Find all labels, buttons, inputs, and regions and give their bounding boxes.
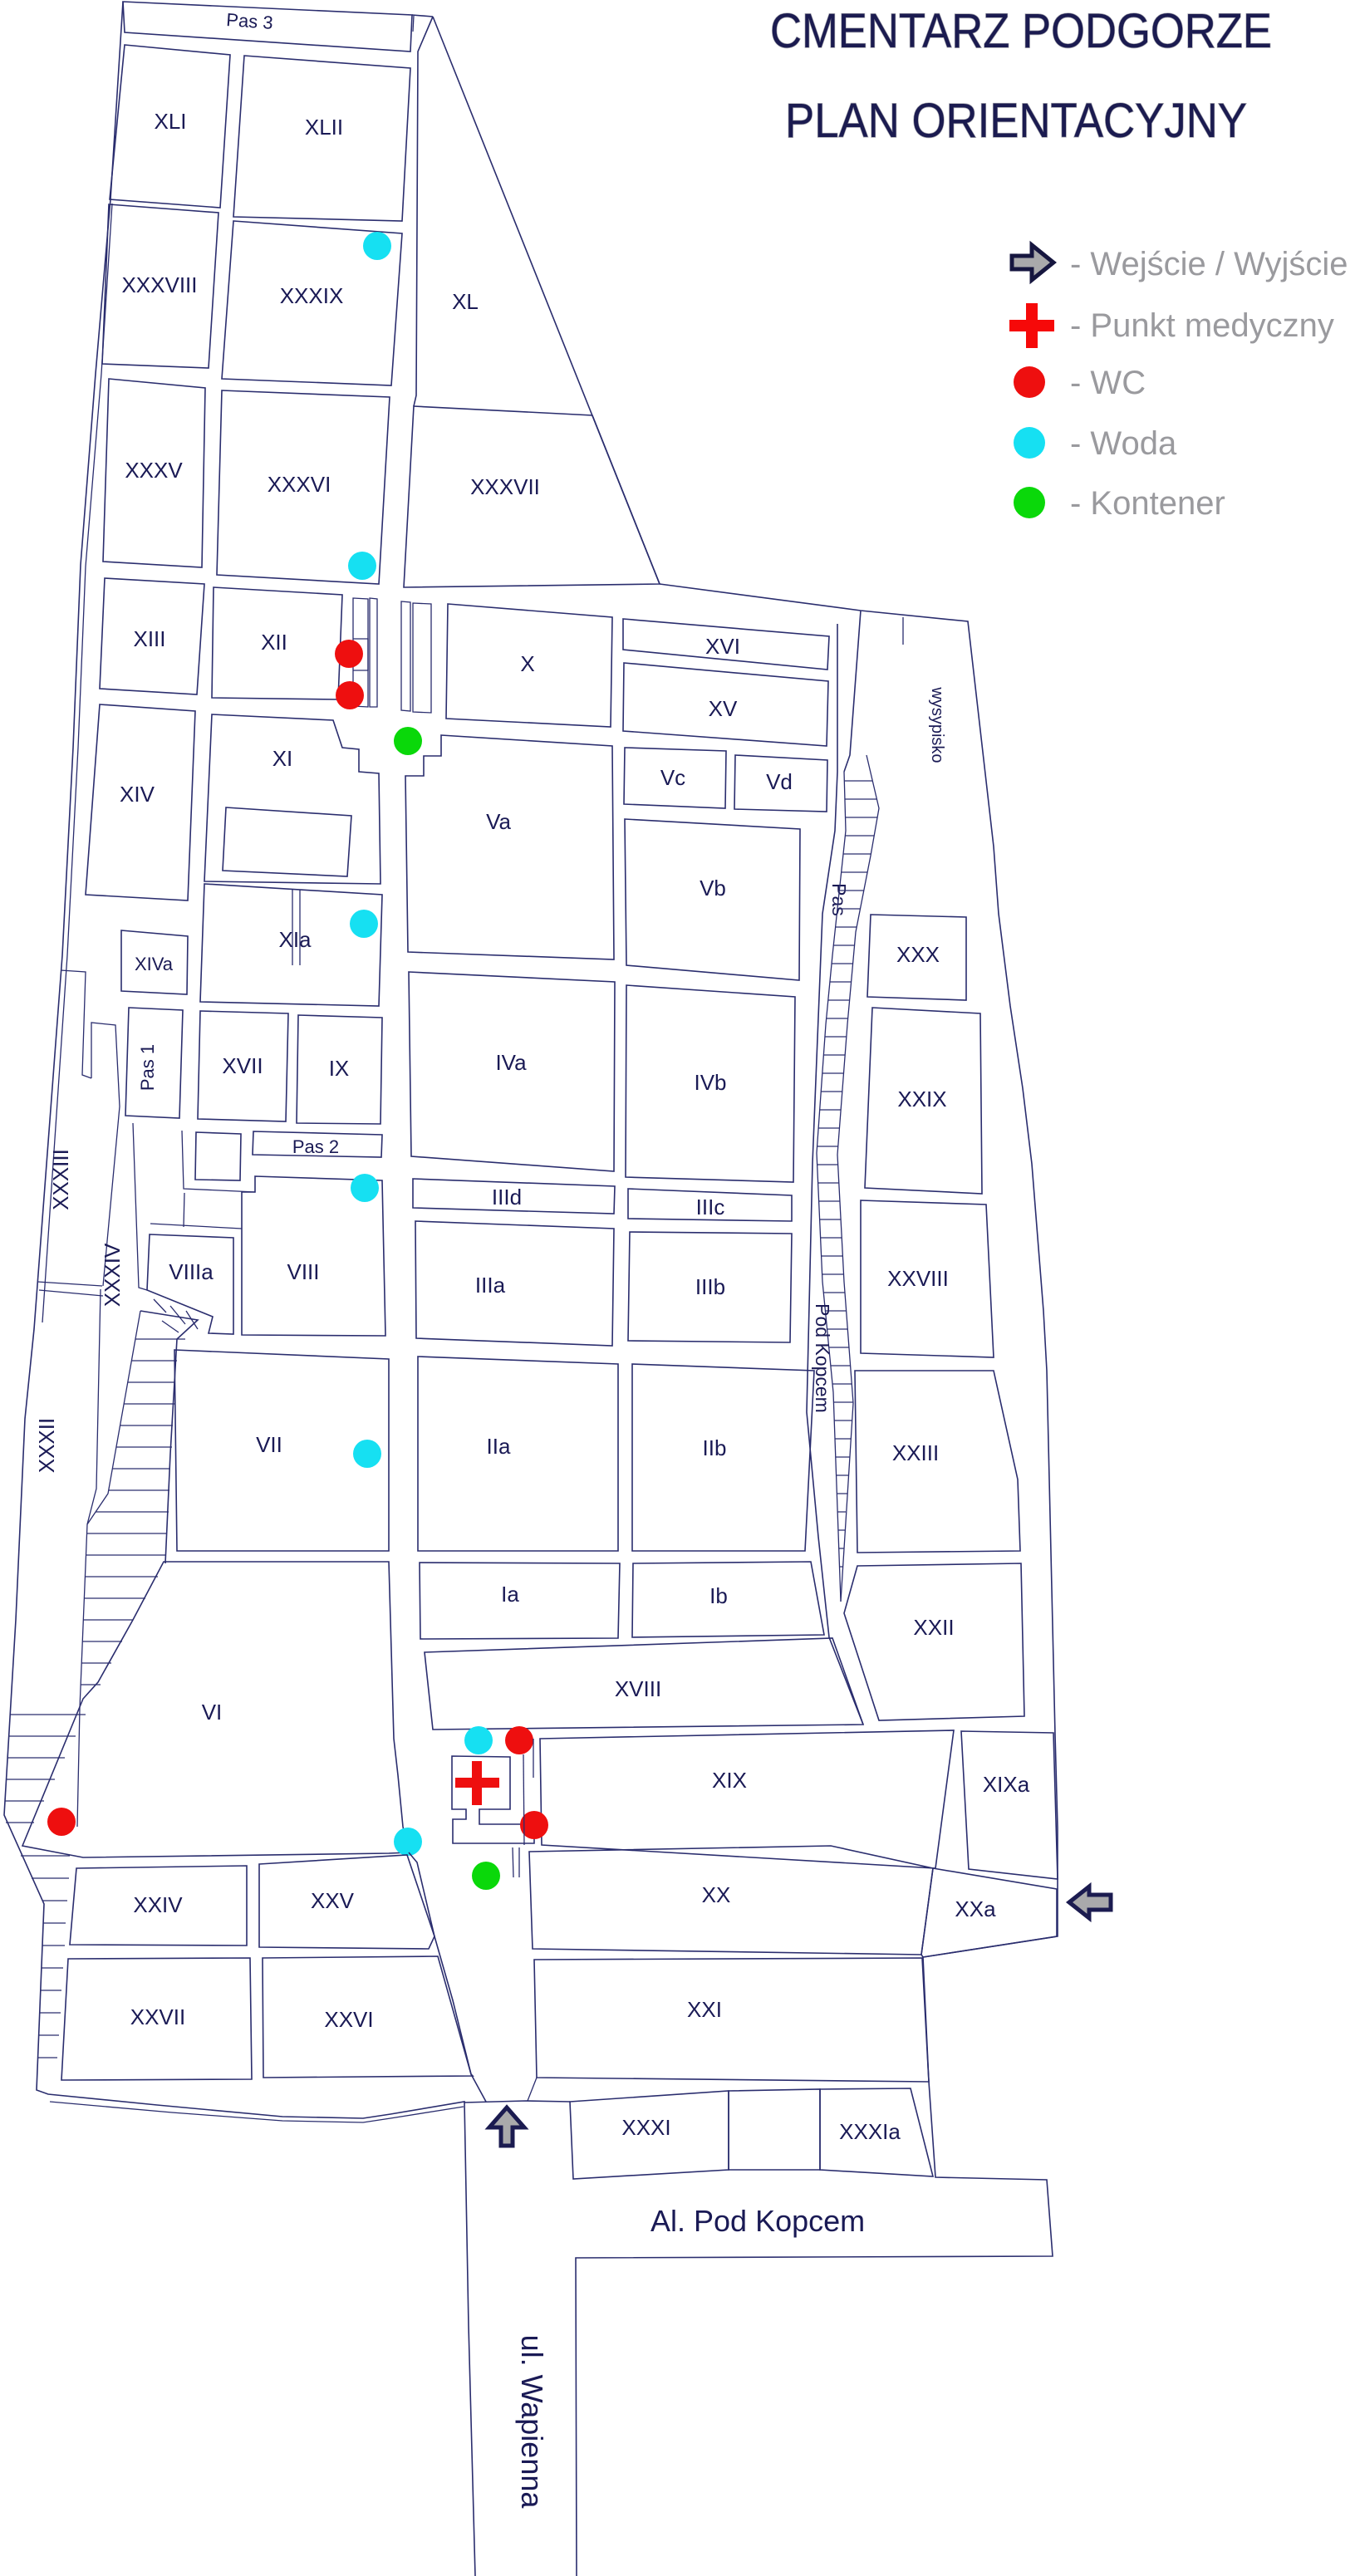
svg-text:XXXIV: XXXIV xyxy=(100,1243,125,1307)
svg-text:IIb: IIb xyxy=(703,1435,727,1460)
svg-text:XI: XI xyxy=(272,746,293,771)
svg-text:XIXa: XIXa xyxy=(983,1772,1030,1797)
svg-text:XXIX: XXIX xyxy=(897,1087,946,1111)
svg-text:XIII: XIII xyxy=(133,626,165,651)
svg-text:XII: XII xyxy=(261,630,287,655)
svg-text:VII: VII xyxy=(256,1432,282,1457)
svg-text:Al. Pod Kopcem: Al. Pod Kopcem xyxy=(650,2204,865,2238)
svg-text:Pas 1: Pas 1 xyxy=(137,1044,158,1091)
svg-text:XIX: XIX xyxy=(712,1768,747,1793)
svg-text:XXVI: XXVI xyxy=(324,2007,373,2032)
svg-text:XXIII: XXIII xyxy=(892,1440,939,1465)
svg-text:ul. Wapienna: ul. Wapienna xyxy=(515,2335,549,2510)
svg-text:Vd: Vd xyxy=(766,769,793,794)
svg-text:XV: XV xyxy=(709,696,738,721)
svg-text:- Wejście / Wyjście: - Wejście / Wyjście xyxy=(1070,246,1348,282)
svg-text:Pod Kopcem: Pod Kopcem xyxy=(812,1303,833,1413)
svg-text:- Woda: - Woda xyxy=(1070,425,1177,462)
svg-text:XXVII: XXVII xyxy=(130,2004,185,2029)
svg-text:XXIV: XXIV xyxy=(133,1892,183,1917)
svg-text:wysypisko: wysypisko xyxy=(928,686,946,763)
svg-text:XXXVIII: XXXVIII xyxy=(121,272,197,297)
svg-text:VIII: VIII xyxy=(287,1259,319,1284)
svg-text:XXXV: XXXV xyxy=(125,458,183,483)
svg-text:Ia: Ia xyxy=(501,1582,519,1607)
svg-text:Pas 3: Pas 3 xyxy=(226,9,274,33)
svg-text:XLII: XLII xyxy=(305,115,343,140)
svg-text:IIIc: IIIc xyxy=(696,1195,725,1219)
svg-text:XXa: XXa xyxy=(955,1896,996,1921)
svg-text:VIIIa: VIIIa xyxy=(169,1259,214,1284)
svg-text:VI: VI xyxy=(202,1700,223,1725)
svg-text:XXII: XXII xyxy=(913,1615,954,1640)
svg-text:- Kontener: - Kontener xyxy=(1070,485,1225,522)
svg-text:XLI: XLI xyxy=(154,109,186,134)
svg-text:XXXI: XXXI xyxy=(621,2115,670,2140)
svg-text:XXXVI: XXXVI xyxy=(268,472,331,497)
svg-text:Vb: Vb xyxy=(700,876,726,900)
svg-text:Pas 2: Pas 2 xyxy=(292,1136,339,1157)
svg-text:XIVa: XIVa xyxy=(135,954,174,974)
svg-text:XX: XX xyxy=(702,1882,731,1907)
svg-text:XXXIa: XXXIa xyxy=(839,2119,901,2144)
svg-text:XXXIII: XXXIII xyxy=(48,1149,73,1210)
svg-text:IVb: IVb xyxy=(694,1070,726,1095)
svg-text:IX: IX xyxy=(329,1056,350,1081)
svg-text:IIId: IIId xyxy=(492,1185,522,1209)
svg-text:Vc: Vc xyxy=(660,765,685,790)
svg-text:XXV: XXV xyxy=(311,1888,355,1913)
svg-text:IVa: IVa xyxy=(495,1050,527,1075)
svg-text:XXXII: XXXII xyxy=(34,1418,59,1473)
svg-text:XIV: XIV xyxy=(120,782,155,807)
svg-text:Ib: Ib xyxy=(709,1583,728,1608)
svg-text:CMENTARZ PODGORZE: CMENTARZ PODGORZE xyxy=(770,4,1272,58)
svg-text:X: X xyxy=(520,651,534,676)
svg-text:XIa: XIa xyxy=(278,927,312,952)
svg-text:XVII: XVII xyxy=(222,1053,263,1078)
svg-text:IIa: IIa xyxy=(487,1434,511,1459)
svg-text:Va: Va xyxy=(486,809,511,834)
svg-text:- Punkt medyczny: - Punkt medyczny xyxy=(1070,307,1334,344)
svg-text:XXXVII: XXXVII xyxy=(470,474,540,499)
svg-text:XVIII: XVIII xyxy=(615,1676,661,1701)
svg-text:XXVIII: XXVIII xyxy=(887,1266,949,1291)
svg-text:XXI: XXI xyxy=(687,1997,722,2022)
svg-text:XL: XL xyxy=(452,289,479,314)
svg-text:XXXIX: XXXIX xyxy=(280,283,344,308)
svg-text:PLAN ORIENTACYJNY: PLAN ORIENTACYJNY xyxy=(785,94,1247,148)
svg-text:XXX: XXX xyxy=(896,942,940,967)
svg-text:IIIb: IIIb xyxy=(695,1274,725,1299)
svg-text:IIIa: IIIa xyxy=(475,1273,506,1298)
svg-text:- WC: - WC xyxy=(1070,365,1146,401)
svg-text:XVI: XVI xyxy=(705,634,740,659)
